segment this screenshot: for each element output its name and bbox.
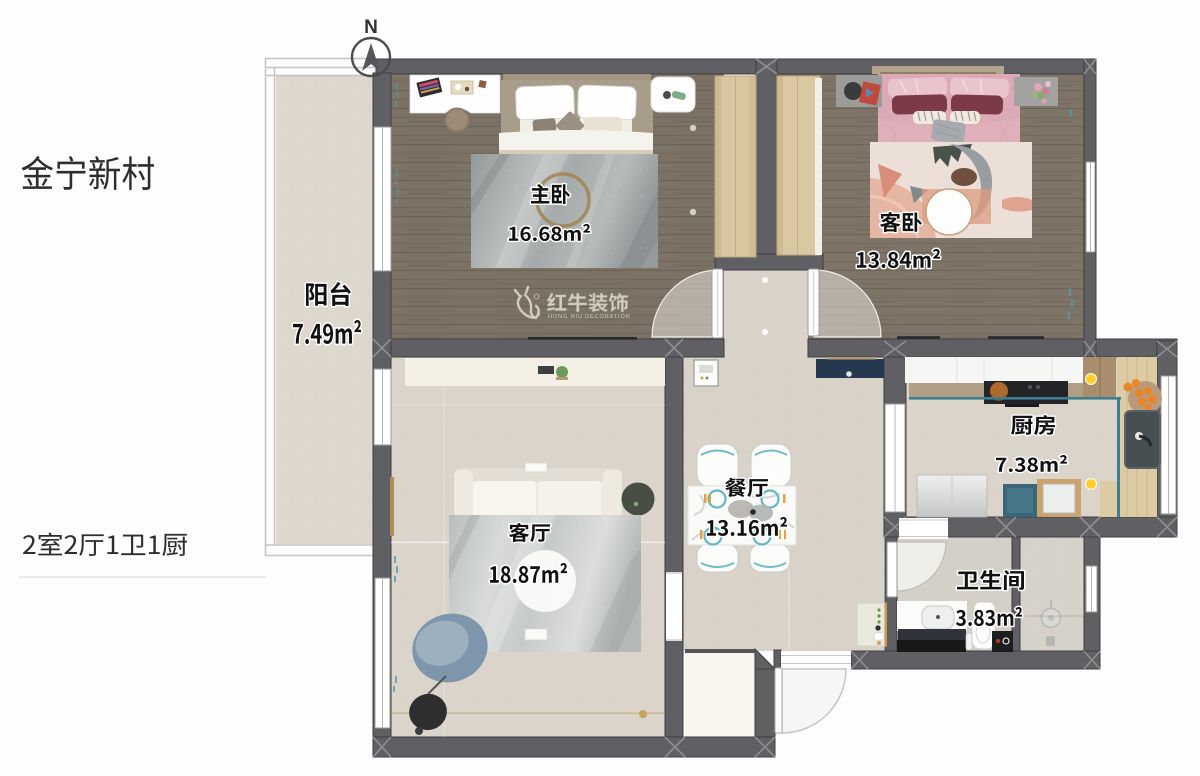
svg-text:N: N (364, 17, 378, 38)
svg-text:HONG NIU DECORATION: HONG NIU DECORATION (548, 314, 631, 320)
